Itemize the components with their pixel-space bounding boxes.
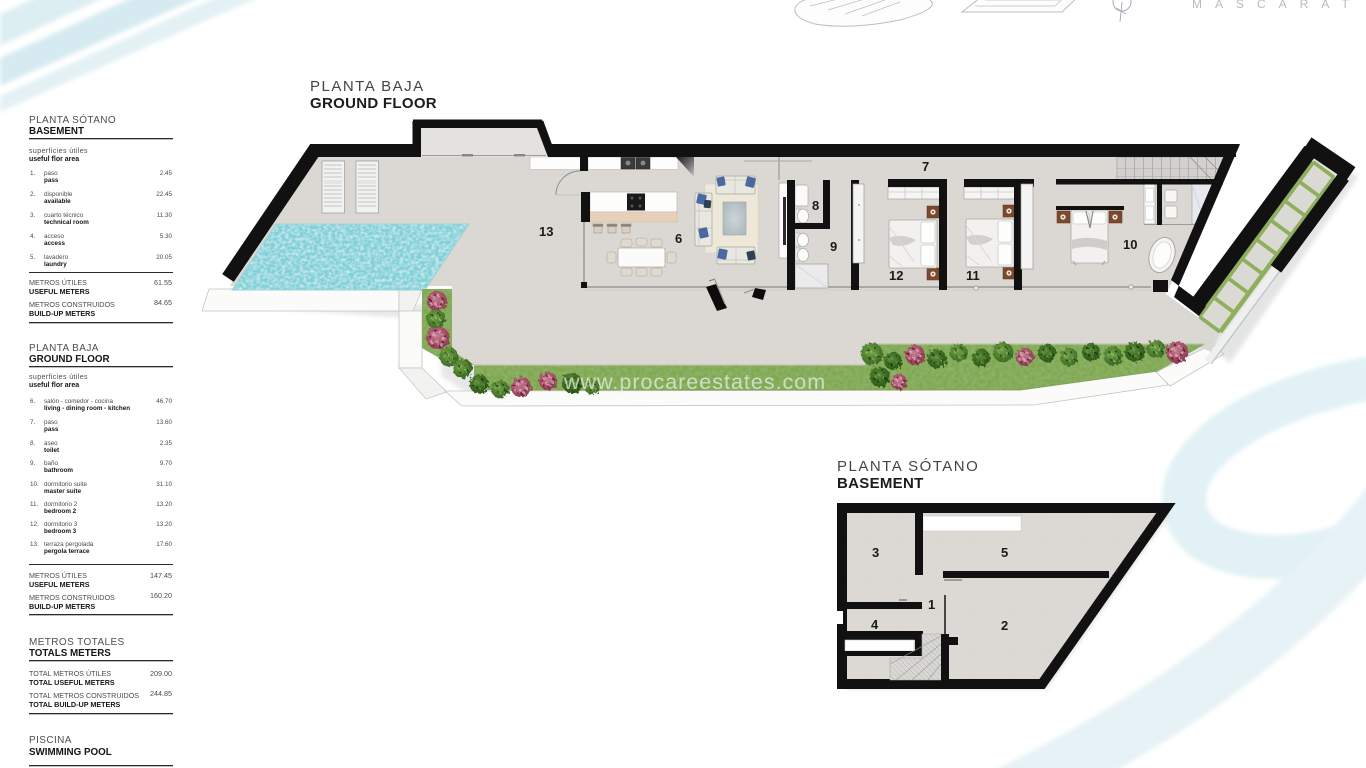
svg-text:8.: 8. <box>30 440 36 447</box>
svg-text:7: 7 <box>922 159 929 174</box>
svg-text:disponible: disponible <box>44 191 73 198</box>
svg-text:TOTAL METROS ÚTILES: TOTAL METROS ÚTILES <box>29 669 111 678</box>
svg-text:BASEMENT: BASEMENT <box>837 475 924 492</box>
svg-text:10: 10 <box>1123 237 1137 252</box>
svg-text:209.00: 209.00 <box>150 669 172 678</box>
svg-text:61.55: 61.55 <box>154 278 172 287</box>
svg-text:paso: paso <box>44 170 58 177</box>
svg-text:acceso: acceso <box>44 233 64 240</box>
svg-text:BASEMENT: BASEMENT <box>29 126 84 137</box>
svg-text:METROS ÚTILES: METROS ÚTILES <box>29 278 87 287</box>
svg-text:bathroom: bathroom <box>44 467 73 474</box>
svg-text:11: 11 <box>966 268 980 283</box>
svg-text:TOTAL BUILD-UP METERS: TOTAL BUILD-UP METERS <box>29 700 121 709</box>
svg-text:pass: pass <box>44 426 59 433</box>
svg-text:terraza pergolada: terraza pergolada <box>44 541 94 548</box>
svg-text:salón - comedor - cocina: salón - comedor - cocina <box>44 398 113 405</box>
svg-text:SWIMMING POOL: SWIMMING POOL <box>29 747 112 758</box>
svg-text:8: 8 <box>812 198 819 213</box>
svg-text:13.60: 13.60 <box>156 419 172 426</box>
svg-text:laundry: laundry <box>44 261 67 268</box>
svg-text:USEFUL METERS: USEFUL METERS <box>29 287 90 296</box>
svg-text:dormitorio suite: dormitorio suite <box>44 481 88 488</box>
svg-text:84.65: 84.65 <box>154 298 172 307</box>
svg-text:PLANTA BAJA: PLANTA BAJA <box>29 343 99 354</box>
svg-text:MASCARAT: MASCARAT <box>1192 0 1362 11</box>
svg-text:cuarto técnico: cuarto técnico <box>44 212 84 219</box>
svg-text:TOTAL METROS CONSTRUIDOS: TOTAL METROS CONSTRUIDOS <box>29 691 139 700</box>
svg-text:PLANTA BAJA: PLANTA BAJA <box>310 78 425 95</box>
svg-text:BUILD-UP METERS: BUILD-UP METERS <box>29 602 95 611</box>
svg-text:useful flor area: useful flor area <box>29 156 79 163</box>
svg-text:superficies útiles: superficies útiles <box>29 374 88 381</box>
svg-text:9.: 9. <box>30 460 36 467</box>
svg-text:46.70: 46.70 <box>156 398 172 405</box>
svg-text:160.20: 160.20 <box>150 591 172 600</box>
svg-text:13.: 13. <box>30 541 39 548</box>
svg-text:METROS ÚTILES: METROS ÚTILES <box>29 571 87 580</box>
svg-text:pergola terrace: pergola terrace <box>44 548 90 555</box>
svg-text:147.45: 147.45 <box>150 571 172 580</box>
svg-text:METROS CONSTRUIDOS: METROS CONSTRUIDOS <box>29 593 115 602</box>
svg-text:11.30: 11.30 <box>157 212 173 219</box>
svg-text:access: access <box>44 240 66 247</box>
svg-text:7.: 7. <box>30 419 36 426</box>
svg-text:toilet: toilet <box>44 447 60 454</box>
svg-text:13.20: 13.20 <box>156 521 172 528</box>
svg-text:METROS TOTALES: METROS TOTALES <box>29 637 125 648</box>
svg-text:aseo: aseo <box>44 440 58 447</box>
svg-text:USEFUL METERS: USEFUL METERS <box>29 580 90 589</box>
svg-text:9: 9 <box>830 239 837 254</box>
svg-text:31.10: 31.10 <box>156 481 172 488</box>
svg-text:1.: 1. <box>30 170 36 177</box>
svg-text:4: 4 <box>871 617 879 632</box>
svg-text:5: 5 <box>1001 545 1008 560</box>
svg-text:baño: baño <box>44 460 59 467</box>
svg-text:12.: 12. <box>30 521 39 528</box>
svg-text:4.: 4. <box>30 233 36 240</box>
svg-text:living - dining room - kitchen: living - dining room - kitchen <box>44 405 130 412</box>
svg-text:2.: 2. <box>30 191 36 198</box>
svg-text:6.: 6. <box>30 398 36 405</box>
svg-text:BUILD-UP METERS: BUILD-UP METERS <box>29 309 95 318</box>
svg-text:bedroom 2: bedroom 2 <box>44 508 77 515</box>
svg-text:lavadero: lavadero <box>44 254 69 261</box>
svg-text:22.45: 22.45 <box>156 191 172 198</box>
svg-text:12: 12 <box>889 268 903 283</box>
svg-text:dormitorio 3: dormitorio 3 <box>44 521 78 528</box>
svg-text:6: 6 <box>675 231 682 246</box>
svg-text:technical room: technical room <box>44 219 89 226</box>
svg-text:5.30: 5.30 <box>160 233 173 240</box>
svg-text:2.45: 2.45 <box>160 170 173 177</box>
svg-text:3: 3 <box>872 545 879 560</box>
svg-text:master suite: master suite <box>44 488 82 495</box>
svg-text:GROUND FLOOR: GROUND FLOOR <box>29 354 110 365</box>
svg-text:10.: 10. <box>30 481 39 488</box>
svg-text:13: 13 <box>539 224 553 239</box>
svg-text:available: available <box>44 198 71 205</box>
svg-text:TOTALS METERS: TOTALS METERS <box>29 648 111 659</box>
svg-text:bedroom 3: bedroom 3 <box>44 528 77 535</box>
svg-text:2: 2 <box>1001 618 1008 633</box>
svg-text:TOTAL USEFUL METERS: TOTAL USEFUL METERS <box>29 678 115 687</box>
svg-text:5.: 5. <box>30 254 36 261</box>
svg-text:9.70: 9.70 <box>160 460 173 467</box>
svg-text:METROS CONSTRUIDOS: METROS CONSTRUIDOS <box>29 300 115 309</box>
svg-text:244.85: 244.85 <box>150 689 172 698</box>
svg-text:dormitorio 2: dormitorio 2 <box>44 501 78 508</box>
svg-text:pass: pass <box>44 177 59 184</box>
svg-text:superficies útiles: superficies útiles <box>29 148 88 155</box>
svg-text:useful flor area: useful flor area <box>29 382 79 389</box>
svg-text:2.35: 2.35 <box>160 440 173 447</box>
svg-text:www.procareestates.com: www.procareestates.com <box>563 370 826 394</box>
svg-text:paso: paso <box>44 419 58 426</box>
svg-text:PLANTA SÓTANO: PLANTA SÓTANO <box>837 458 979 475</box>
svg-text:20.05: 20.05 <box>156 254 172 261</box>
svg-text:PLANTA SÓTANO: PLANTA SÓTANO <box>29 113 116 126</box>
svg-text:17.60: 17.60 <box>156 541 172 548</box>
svg-text:13.20: 13.20 <box>156 501 172 508</box>
svg-text:1: 1 <box>928 597 935 612</box>
svg-text:3.: 3. <box>30 212 36 219</box>
svg-text:11.: 11. <box>30 501 39 508</box>
svg-text:GROUND FLOOR: GROUND FLOOR <box>310 95 437 112</box>
svg-text:PISCINA: PISCINA <box>29 735 72 746</box>
